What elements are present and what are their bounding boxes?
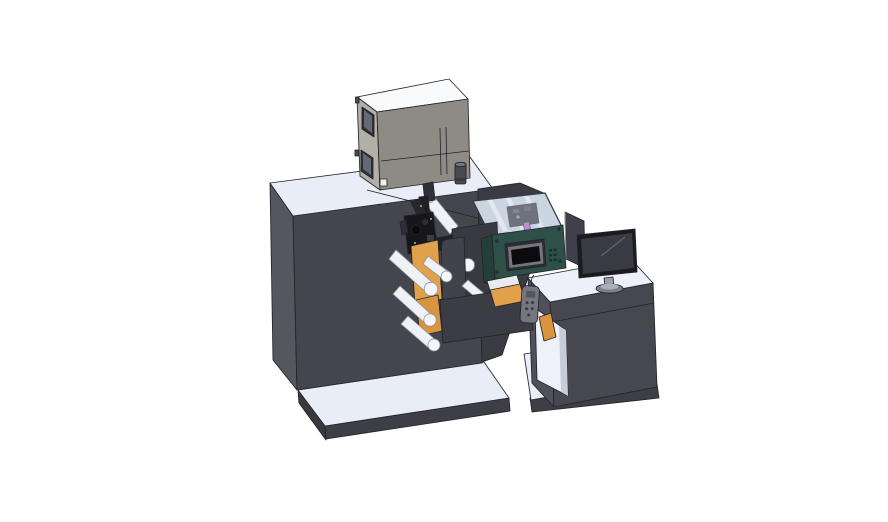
cad-render-canvas: [0, 0, 888, 522]
web-roller-2-cap: [424, 314, 436, 326]
hmi-button-4: [554, 254, 557, 257]
cabinet-latch: [380, 179, 387, 186]
nip-roller-cap: [441, 271, 452, 282]
hmi-button-1: [549, 249, 552, 252]
web-roller-1-cap: [424, 282, 438, 296]
monitor-base-top: [601, 284, 619, 290]
printhead-glint-3: [414, 242, 416, 244]
printhead-glint-1: [420, 205, 422, 207]
cabinet-hinge-top: [356, 97, 360, 103]
cabinet-hinge-bottom: [355, 150, 359, 156]
printhead-hub: [412, 226, 421, 235]
hmi-button-5: [549, 259, 552, 262]
hmi-button-6: [554, 259, 557, 262]
vent-cylinder-cap: [455, 162, 466, 166]
vent-cylinder-band: [455, 178, 466, 181]
hmi-screw-2: [495, 270, 499, 274]
hmi-button-2: [554, 249, 557, 252]
web-roller-3-cap: [428, 339, 440, 351]
printhead-detail-1: [427, 235, 434, 241]
printhead-glint-2: [430, 218, 432, 220]
hmi-screw-3: [557, 227, 561, 231]
hmi-screw-4: [558, 259, 562, 263]
electrical-cabinet: [355, 79, 470, 190]
pendant-display: [526, 291, 535, 298]
machine-line-illustration: [0, 0, 888, 522]
monitor-screen: [581, 233, 634, 274]
hmi-screw-1: [495, 239, 499, 243]
printhead-knob: [422, 219, 428, 225]
operator-desk: [524, 259, 659, 412]
hmi-button-3: [549, 254, 552, 257]
